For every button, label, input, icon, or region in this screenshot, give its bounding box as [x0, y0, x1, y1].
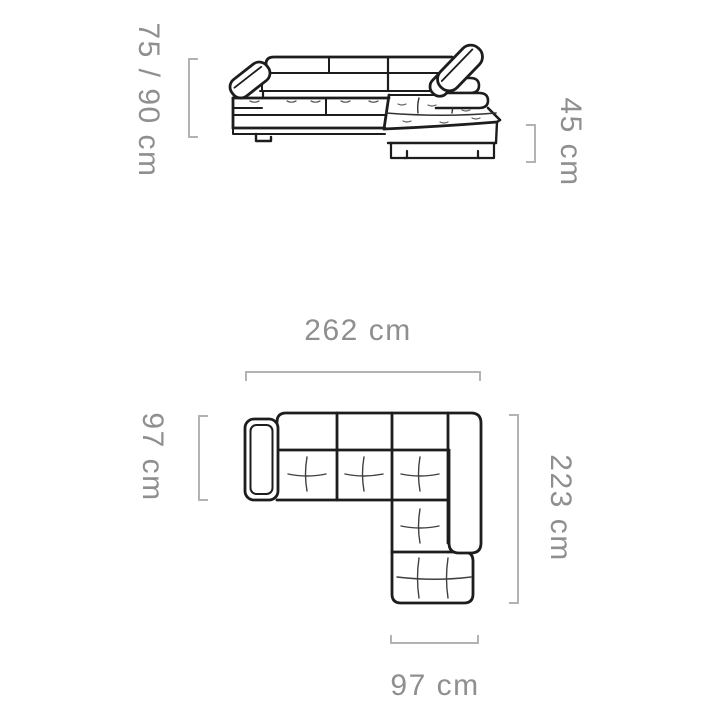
dimension-label-chaise-width: 97 cm: [390, 669, 479, 703]
dim-bracket-chaise-width: [391, 636, 478, 643]
sofa-line-drawing: [0, 0, 720, 720]
dimension-label-side-depth: 97 cm: [135, 412, 169, 501]
front-left-foot: [256, 134, 271, 141]
dimension-label-seat-height: 45 cm: [553, 97, 587, 186]
front-view-drawing: [226, 41, 500, 158]
dim-bracket-side-depth: [199, 416, 207, 500]
dim-bracket-total-depth: [510, 415, 518, 603]
dim-bracket-height: [189, 59, 197, 137]
seat-stitch-marks: [250, 101, 378, 102]
chaise-right-foot: [478, 143, 494, 158]
dim-bracket-width: [246, 372, 480, 380]
chaise-left-foot: [391, 143, 407, 158]
dim-bracket-seat-height: [527, 125, 535, 162]
left-armrest: [245, 419, 278, 500]
dimension-label-height: 75 / 90 cm: [131, 22, 165, 177]
top-view-drawing: [245, 413, 481, 603]
chaise-tuft-grid: [397, 558, 471, 598]
dimension-label-width: 262 cm: [304, 314, 411, 348]
dimension-label-total-depth: 223 cm: [543, 454, 577, 561]
left-headrest-pillow: [226, 58, 274, 102]
dimension-diagram: 75 / 90 cm 45 cm 262 cm 97 cm 223 cm 97 …: [0, 0, 720, 720]
